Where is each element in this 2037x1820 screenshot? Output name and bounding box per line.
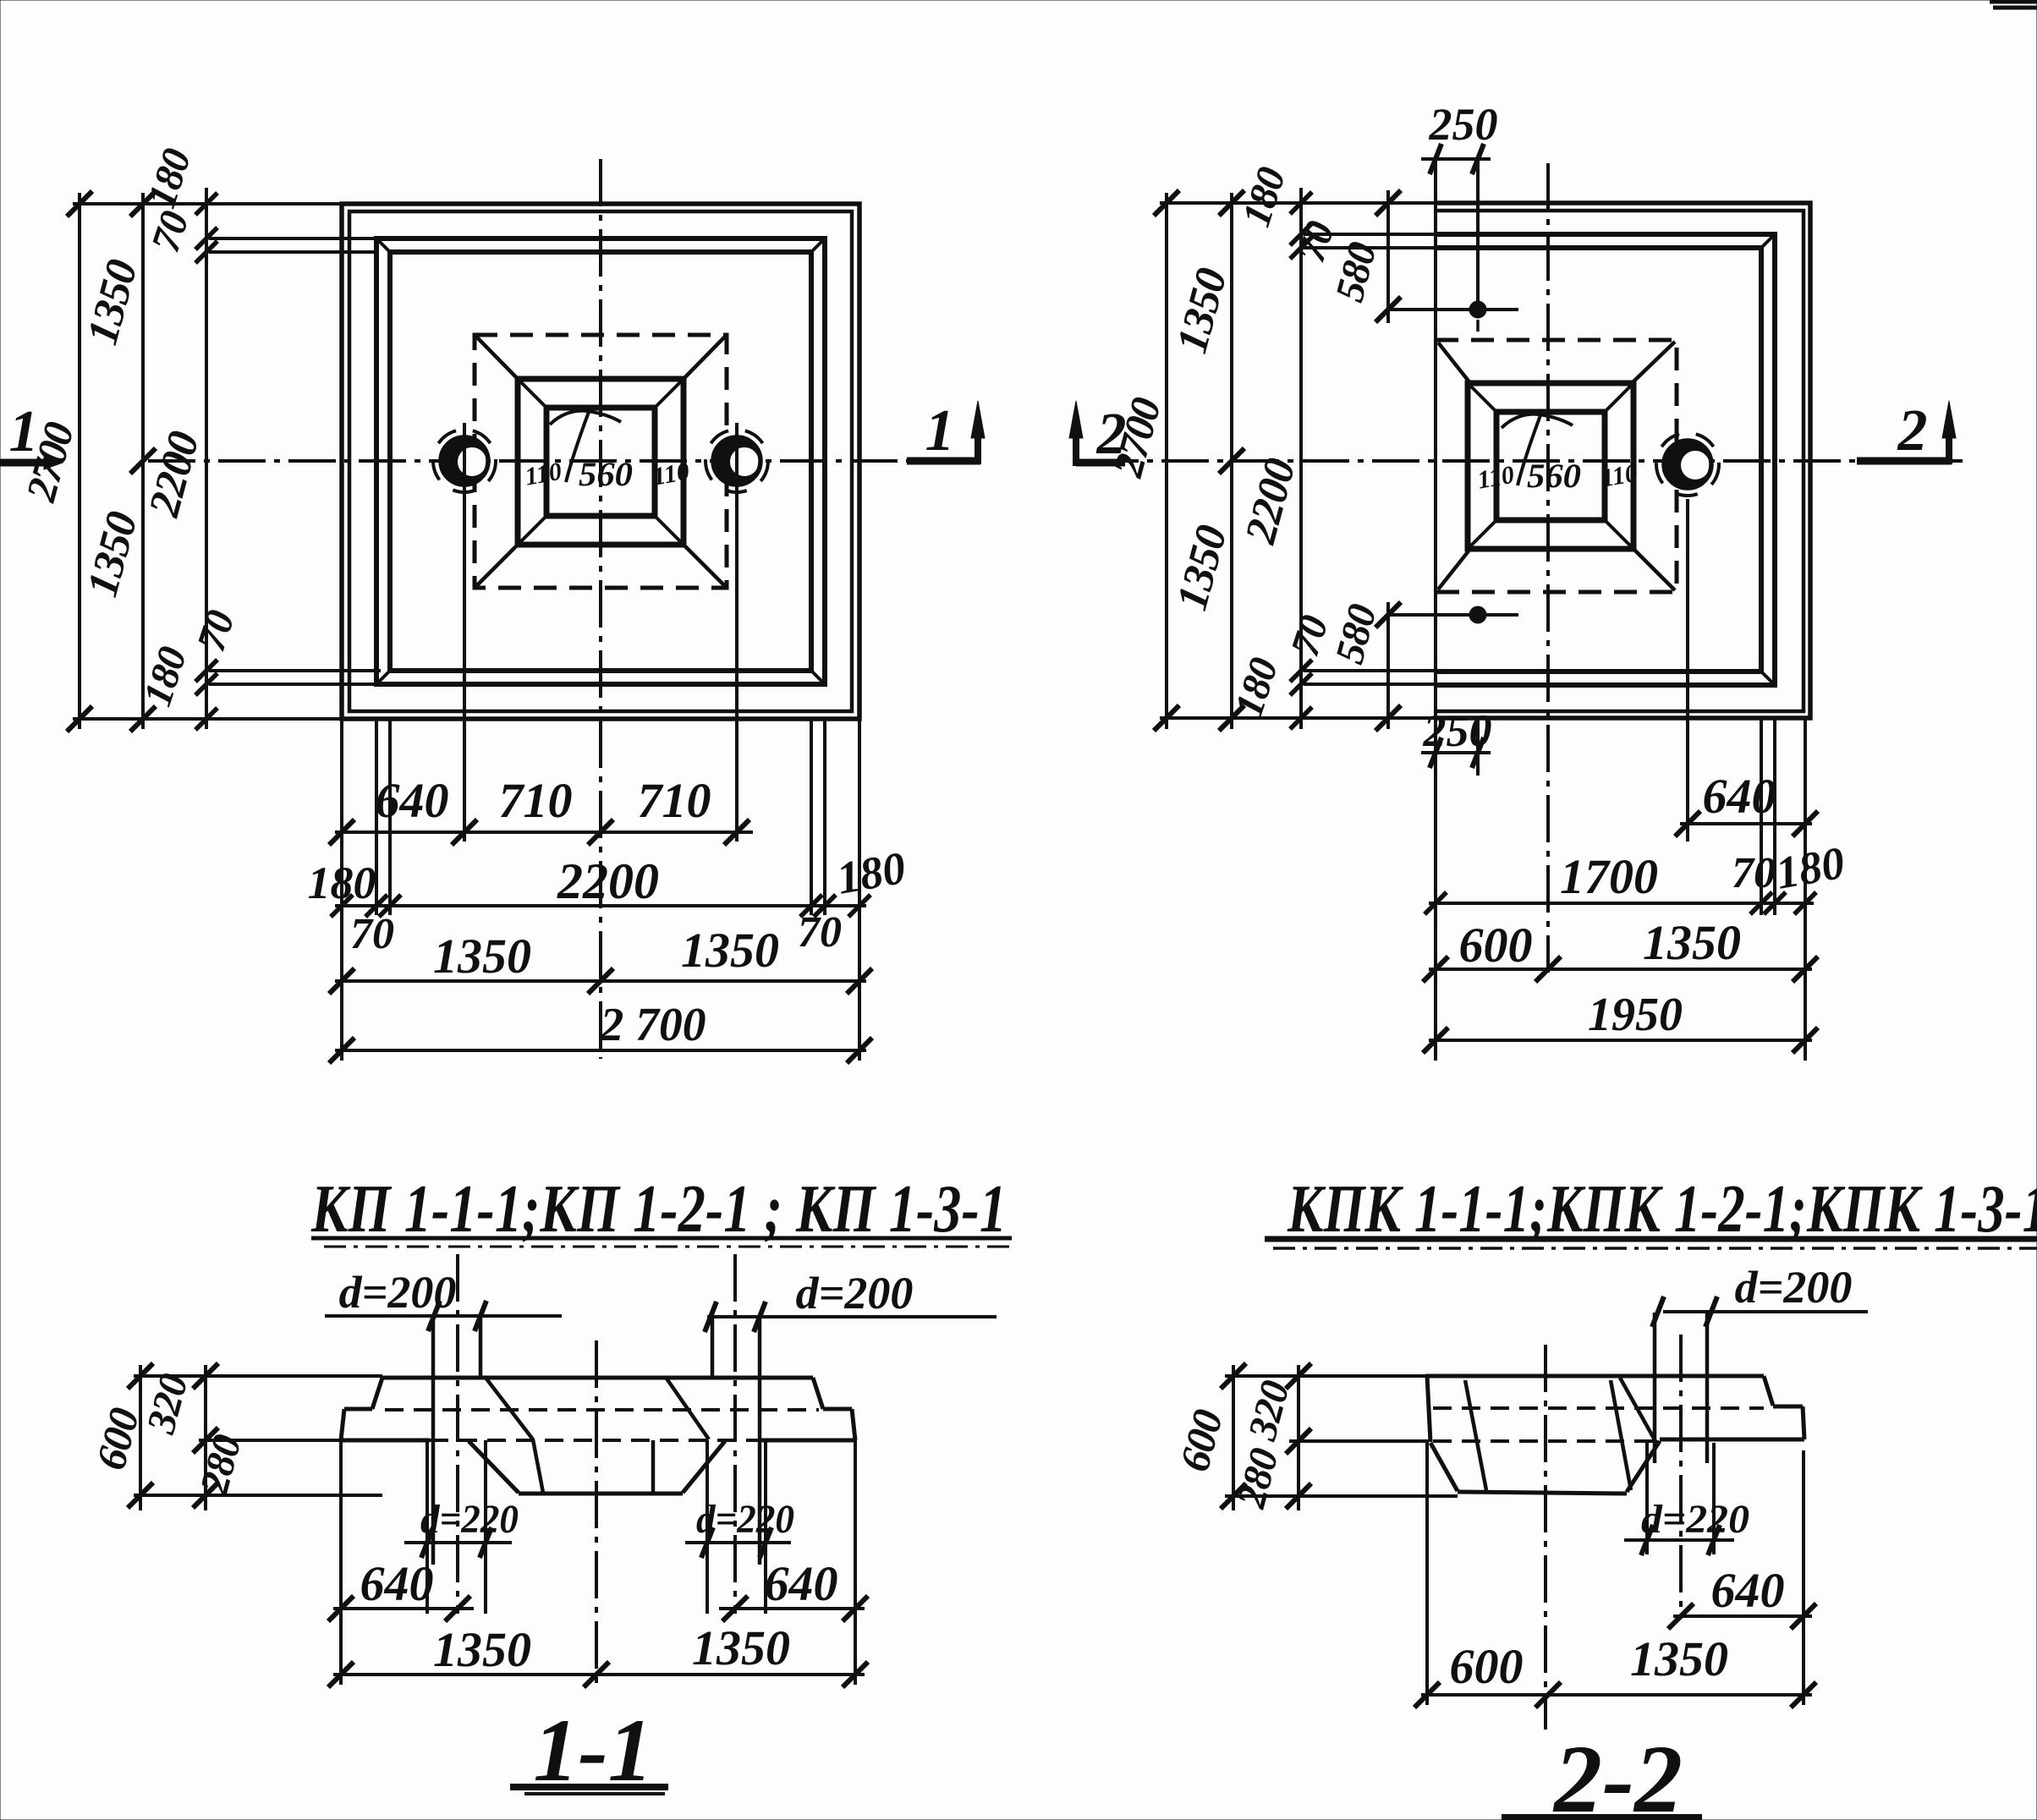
svg-text:d=220: d=220: [696, 1497, 794, 1542]
svg-text:250: 250: [1429, 99, 1498, 150]
svg-text:600: 600: [1459, 918, 1533, 973]
svg-text:250: 250: [1423, 705, 1492, 756]
svg-text:d=200: d=200: [796, 1268, 914, 1318]
svg-text:1350: 1350: [433, 929, 531, 984]
svg-text:70: 70: [350, 910, 394, 958]
svg-text:d=200: d=200: [339, 1267, 457, 1318]
svg-text:d=200: d=200: [1735, 1262, 1853, 1313]
svg-text:КП 1-1-1;КП 1-2-1 ; КП 1-3-1: КП 1-1-1;КП 1-2-1 ; КП 1-3-1: [310, 1172, 1007, 1247]
svg-text:640: 640: [360, 1556, 434, 1611]
svg-text:2200: 2200: [557, 853, 659, 909]
svg-text:600: 600: [1450, 1639, 1524, 1694]
svg-text:640: 640: [1711, 1563, 1785, 1618]
svg-text:560: 560: [579, 455, 633, 493]
svg-text:640: 640: [1703, 769, 1776, 824]
svg-text:1700: 1700: [1560, 849, 1658, 904]
svg-text:180: 180: [308, 858, 376, 908]
svg-text:1350: 1350: [692, 1620, 790, 1675]
svg-text:70: 70: [798, 908, 842, 957]
svg-text:2 700: 2 700: [600, 999, 706, 1051]
svg-text:640: 640: [765, 1556, 838, 1611]
svg-text:2-2: 2-2: [1552, 1725, 1683, 1820]
svg-text:710: 710: [638, 773, 711, 828]
svg-text:70: 70: [1732, 849, 1776, 897]
svg-text:560: 560: [1527, 457, 1581, 495]
svg-text:1350: 1350: [1630, 1631, 1728, 1686]
svg-text:1: 1: [925, 398, 955, 463]
svg-text:1350: 1350: [681, 923, 779, 978]
svg-text:640: 640: [376, 773, 449, 828]
svg-text:1350: 1350: [433, 1622, 531, 1677]
svg-text:2: 2: [1897, 398, 1928, 463]
svg-text:d=220: d=220: [1641, 1497, 1749, 1542]
svg-text:КПК 1-1-1;КПК 1-2-1;КПК 1-3-1: КПК 1-1-1;КПК 1-2-1;КПК 1-3-1: [1287, 1172, 2037, 1247]
svg-text:1350: 1350: [1643, 915, 1741, 970]
svg-text:710: 710: [499, 773, 573, 828]
svg-text:1950: 1950: [1588, 989, 1683, 1041]
svg-text:d=220: d=220: [420, 1497, 519, 1542]
